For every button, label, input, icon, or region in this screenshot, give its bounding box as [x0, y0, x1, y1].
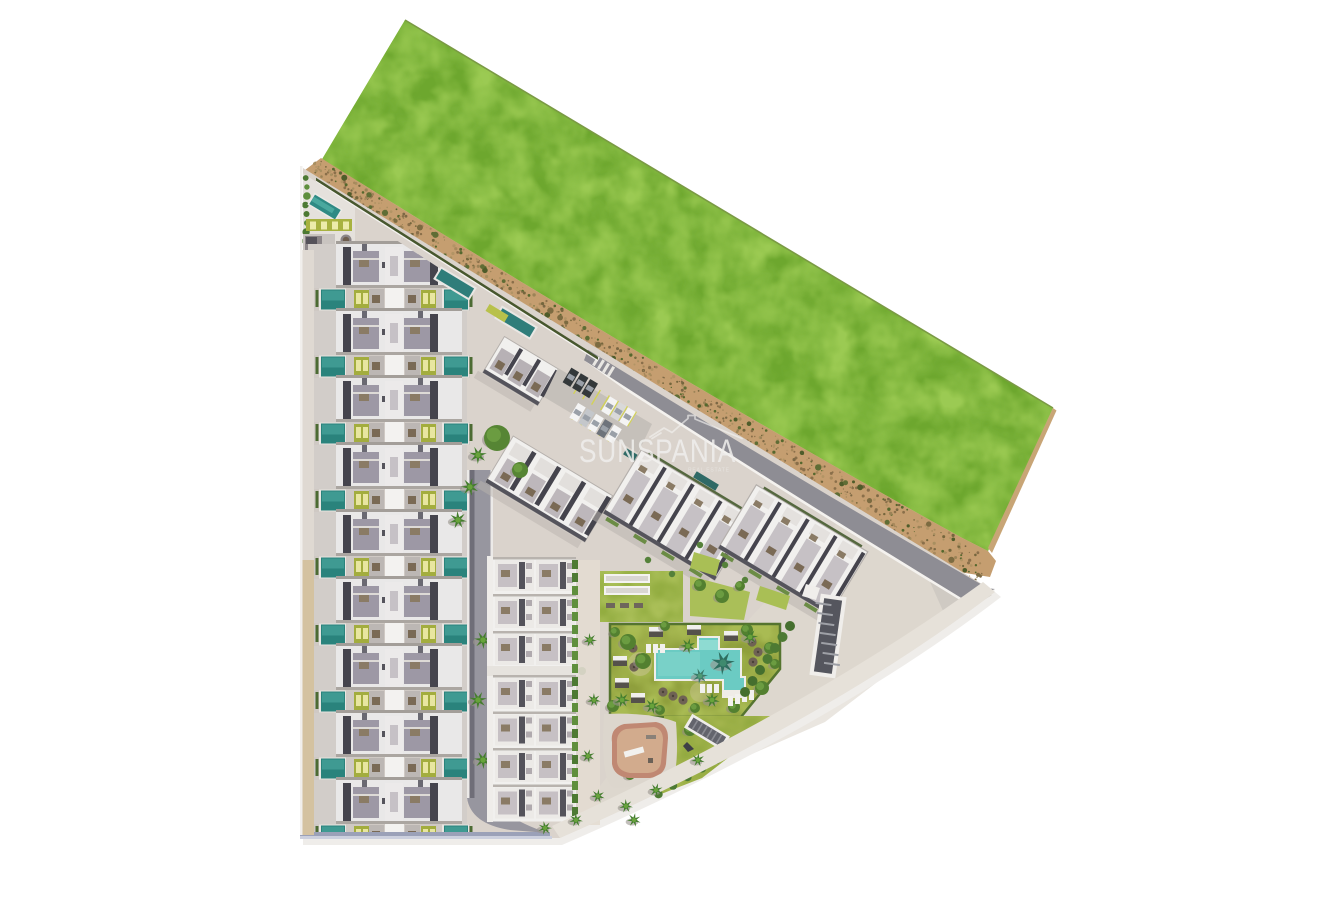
svg-text:REAL ESTATE: REAL ESTATE	[688, 468, 730, 474]
svg-text:SUNSPANIA: SUNSPANIA	[579, 433, 736, 469]
